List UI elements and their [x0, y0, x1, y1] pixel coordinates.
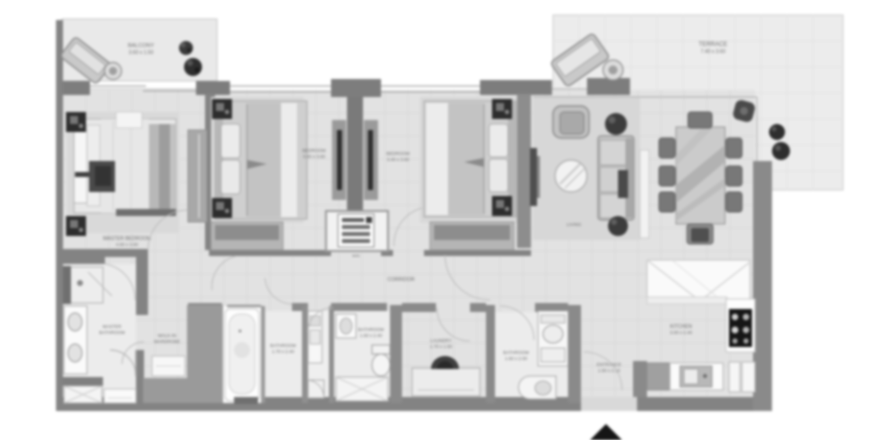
svg-text:3.40 x 3.60: 3.40 x 3.60 [387, 157, 410, 162]
svg-text:BEDROOM: BEDROOM [302, 148, 326, 153]
svg-text:3.60 x 1.50: 3.60 x 1.50 [129, 50, 154, 56]
svg-text:1.70 x 2.40: 1.70 x 2.40 [272, 349, 295, 354]
svg-text:1.60 x 2.00: 1.60 x 2.00 [505, 356, 528, 361]
svg-text:3.40 x 3.60: 3.40 x 3.60 [303, 154, 326, 159]
svg-text:MASTER: MASTER [103, 324, 123, 329]
svg-text:ENTRANCE: ENTRANCE [597, 362, 622, 367]
svg-text:BATHROOM: BATHROOM [99, 330, 125, 335]
svg-text:WALK-IN: WALK-IN [158, 333, 177, 338]
svg-text:TERRACE: TERRACE [699, 42, 728, 48]
svg-text:LIVING: LIVING [567, 222, 582, 227]
svg-text:1.60 x 2.40: 1.60 x 2.40 [360, 333, 383, 338]
svg-text:4.60 x 3.60: 4.60 x 3.60 [116, 242, 139, 247]
svg-text:CORRIDOR: CORRIDOR [387, 277, 415, 283]
svg-text:BATHROOM: BATHROOM [270, 343, 296, 348]
svg-text:BATHROOM: BATHROOM [358, 327, 384, 332]
svg-text:WARDROBE: WARDROBE [154, 339, 180, 344]
svg-text:LAUNDRY: LAUNDRY [430, 338, 451, 343]
svg-text:BATHROOM: BATHROOM [503, 350, 529, 355]
svg-text:BEDROOM: BEDROOM [386, 151, 410, 156]
svg-text:1.70 x 1.50: 1.70 x 1.50 [430, 344, 453, 349]
svg-text:7.40 x 3.60: 7.40 x 3.60 [701, 49, 726, 55]
svg-text:W/D: W/D [352, 253, 360, 258]
svg-text:BALCONY: BALCONY [128, 43, 155, 49]
svg-text:3.00 x 2.40: 3.00 x 2.40 [670, 330, 693, 335]
